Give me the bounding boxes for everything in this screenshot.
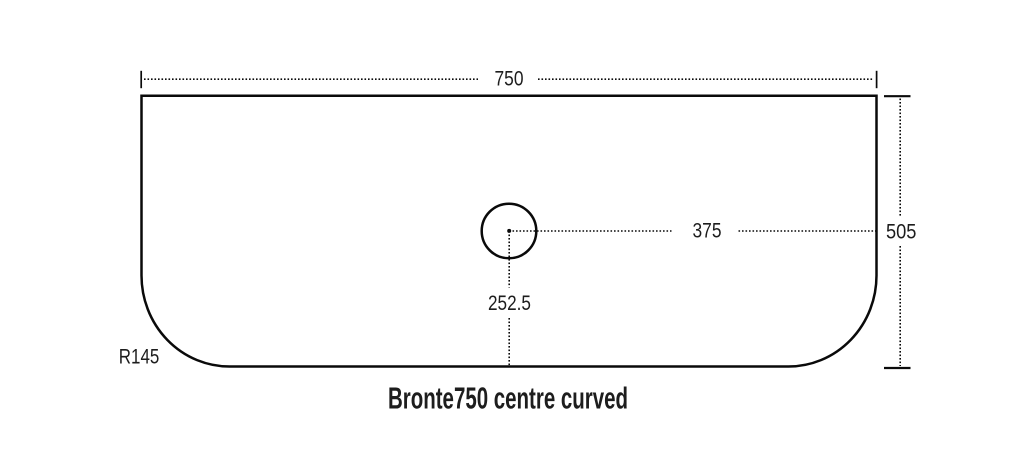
svg-text:252.5: 252.5 [488,292,531,315]
svg-text:375: 375 [693,220,722,243]
svg-text:750: 750 [495,67,524,90]
svg-text:R145: R145 [119,346,160,369]
svg-text:Bronte750 centre curved: Bronte750 centre curved [388,382,628,416]
svg-text:505: 505 [886,221,917,244]
